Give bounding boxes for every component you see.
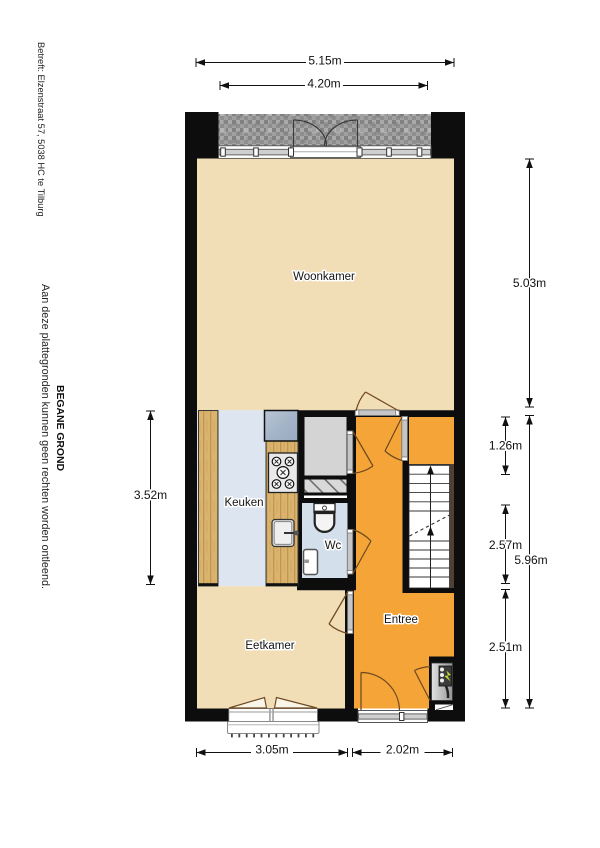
svg-text:2.02m: 2.02m <box>386 743 419 757</box>
svg-text:2.57m: 2.57m <box>489 538 522 552</box>
svg-text:Eetkamer: Eetkamer <box>245 640 294 652</box>
svg-text:5.03m: 5.03m <box>513 276 546 290</box>
svg-text:Entree: Entree <box>384 614 418 626</box>
svg-text:4.20m: 4.20m <box>307 77 340 91</box>
svg-text:3.52m: 3.52m <box>134 488 167 502</box>
svg-text:Wc: Wc <box>325 540 342 552</box>
svg-text:2.51m: 2.51m <box>489 640 522 654</box>
svg-text:Aan deze plattegronden kunnen: Aan deze plattegronden kunnen geen recht… <box>39 284 51 589</box>
svg-text:5.96m: 5.96m <box>514 553 547 567</box>
svg-text:5.15m: 5.15m <box>308 54 341 68</box>
svg-text:1.26m: 1.26m <box>489 439 522 453</box>
svg-text:3.05m: 3.05m <box>255 743 288 757</box>
svg-text:Keuken: Keuken <box>224 497 263 509</box>
svg-text:Betreft: Elzenstraat 57, 5038: Betreft: Elzenstraat 57, 5038 HC te Tilb… <box>36 42 46 217</box>
svg-text:Woonkamer: Woonkamer <box>293 271 355 283</box>
svg-text:BEGANE GROND: BEGANE GROND <box>54 385 65 472</box>
